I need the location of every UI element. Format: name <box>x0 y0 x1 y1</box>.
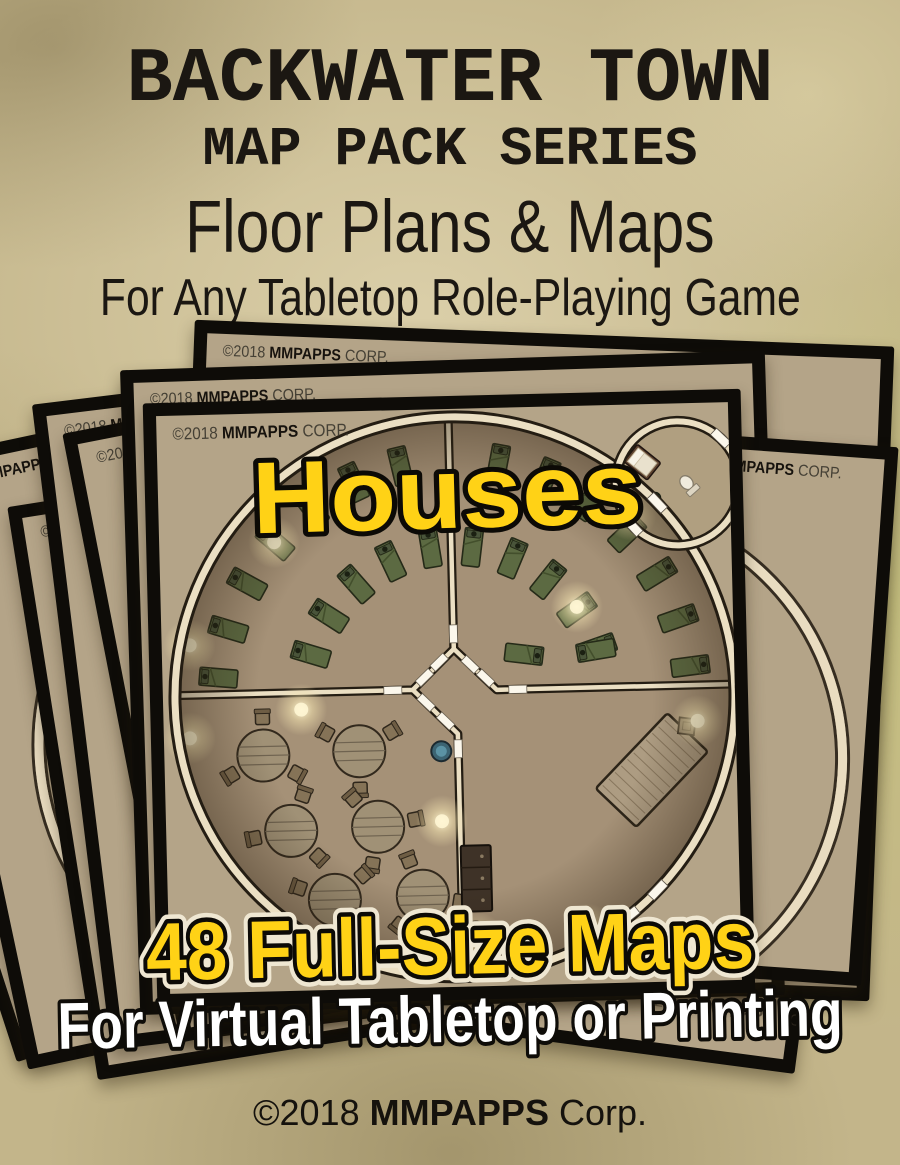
map-name-overlay: Houses <box>185 420 708 564</box>
usage-overlay: For Virtual Tabletop or Printing <box>39 963 861 1072</box>
usage-label: For Virtual Tabletop or Printing <box>57 975 843 1063</box>
houses-label: Houses <box>251 431 644 556</box>
footer-copyright: ©2018 MMPAPPS Corp. <box>0 1092 900 1134</box>
poster-background: BACKWATER TOWN MAP PACK SERIES Floor Pla… <box>0 0 900 1165</box>
map-card-stack: ©2018 MMPAPPS CORP. ©2018 MMPAPPS CORP. … <box>0 0 900 1165</box>
